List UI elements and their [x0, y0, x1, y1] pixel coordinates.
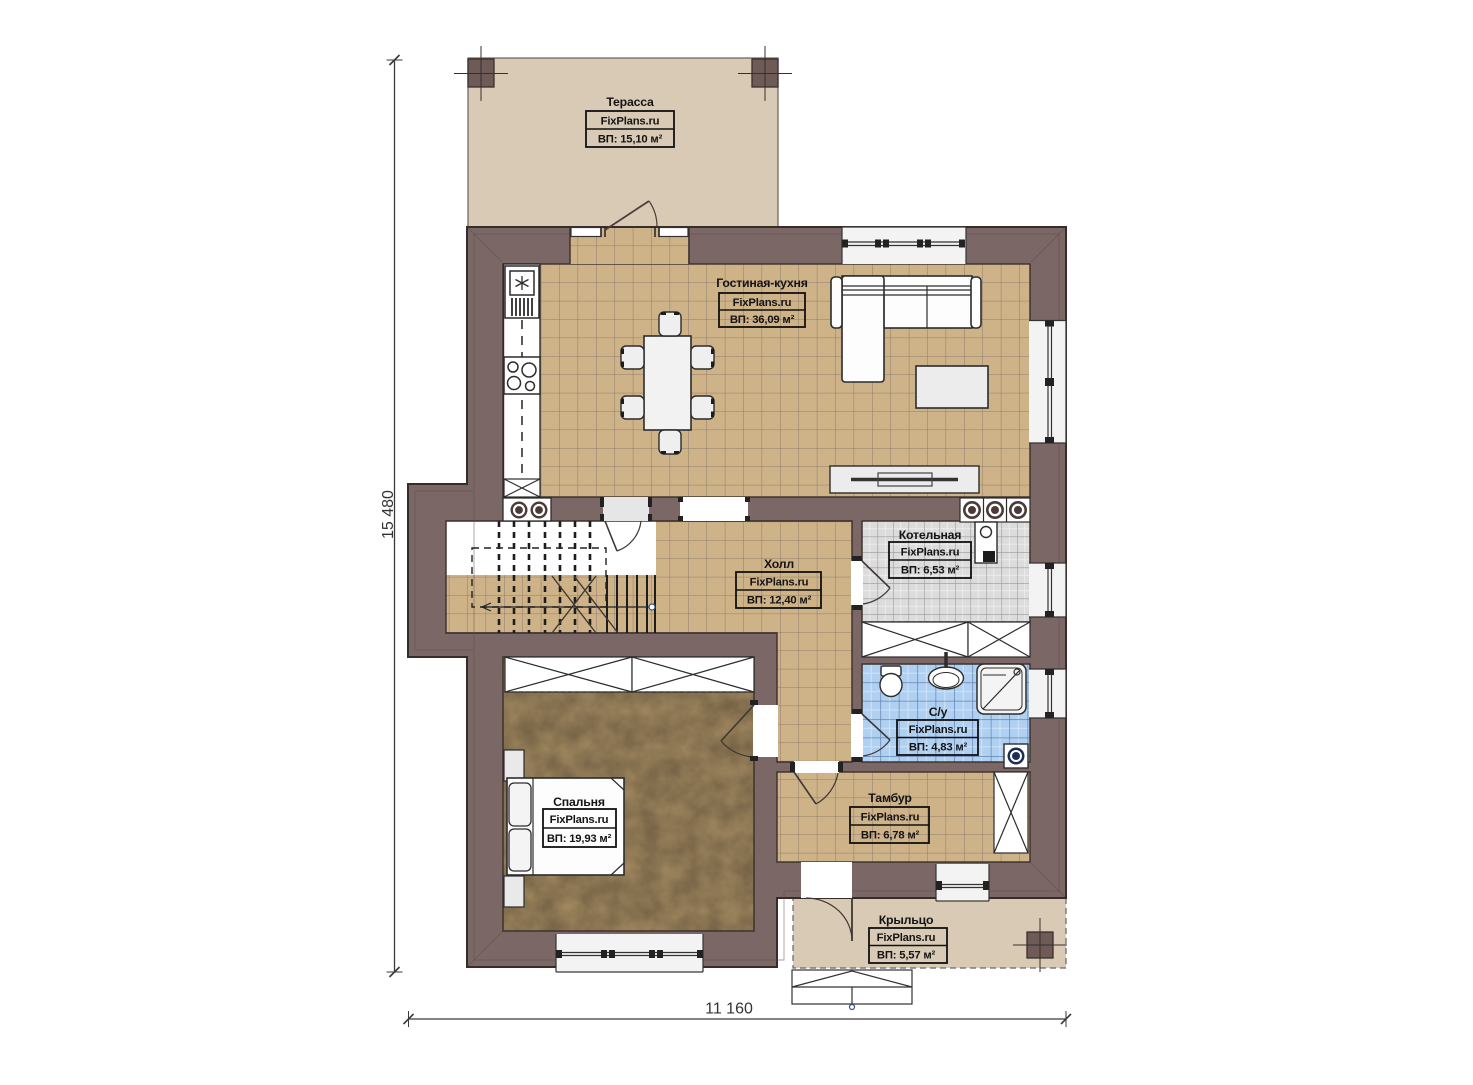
svg-text:FixPlans.ru: FixPlans.ru	[909, 724, 968, 736]
svg-text:Гостиная-кухня: Гостиная-кухня	[716, 276, 807, 290]
svg-text:11 160: 11 160	[705, 1001, 753, 1018]
svg-text:ВП: 12,40 м²: ВП: 12,40 м²	[747, 595, 812, 607]
svg-text:ВП: 19,93 м²: ВП: 19,93 м²	[547, 833, 612, 845]
svg-text:FixPlans.ru: FixPlans.ru	[733, 297, 792, 309]
svg-text:Тамбур: Тамбур	[868, 791, 911, 805]
svg-text:FixPlans.ru: FixPlans.ru	[601, 116, 660, 128]
svg-text:ВП: 4,83 м²: ВП: 4,83 м²	[909, 742, 968, 754]
svg-text:С/у: С/у	[929, 705, 948, 719]
svg-text:ВП: 36,09 м²: ВП: 36,09 м²	[730, 314, 795, 326]
svg-text:FixPlans.ru: FixPlans.ru	[550, 814, 609, 826]
svg-text:ВП: 15,10 м²: ВП: 15,10 м²	[598, 134, 663, 146]
svg-text:FixPlans.ru: FixPlans.ru	[750, 577, 809, 589]
svg-text:Спальня: Спальня	[553, 795, 605, 809]
svg-text:Котельная: Котельная	[899, 528, 962, 542]
svg-text:Крыльцо: Крыльцо	[879, 913, 934, 927]
svg-text:FixPlans.ru: FixPlans.ru	[861, 812, 920, 824]
svg-text:FixPlans.ru: FixPlans.ru	[877, 932, 936, 944]
svg-text:15 480: 15 480	[380, 490, 397, 539]
svg-text:ВП: 5,57 м²: ВП: 5,57 м²	[877, 950, 936, 962]
svg-text:Холл: Холл	[764, 557, 794, 571]
svg-text:ВП: 6,78 м²: ВП: 6,78 м²	[861, 830, 920, 842]
svg-text:Терасса: Терасса	[606, 95, 654, 109]
svg-text:ВП: 6,53 м²: ВП: 6,53 м²	[901, 565, 960, 577]
svg-text:FixPlans.ru: FixPlans.ru	[901, 547, 960, 559]
